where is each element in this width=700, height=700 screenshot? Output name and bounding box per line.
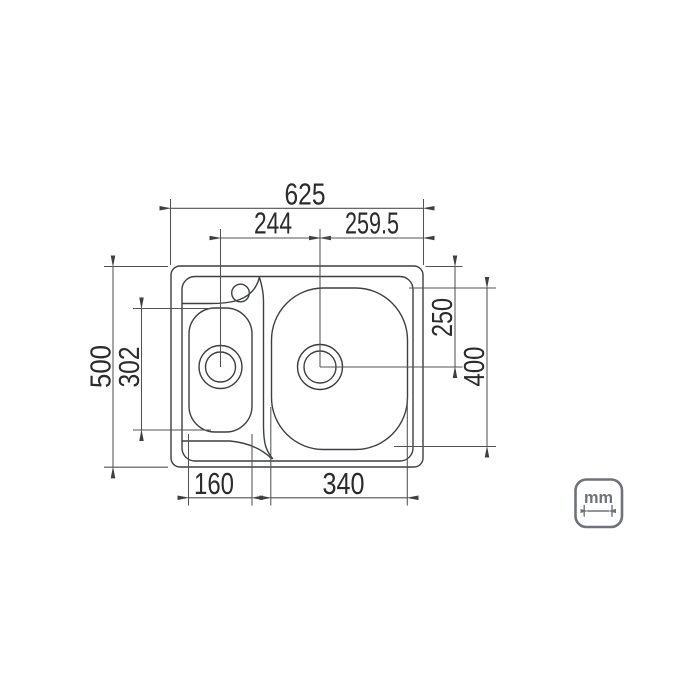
small-bowl-surround-edge — [182, 441, 272, 459]
dimension-lines — [113, 208, 487, 498]
sink-dimension-drawing: 625 244 259.5 500 302 250 400 160 340 mm — [0, 0, 700, 700]
unit-badge-label: mm — [584, 489, 613, 507]
dimension-label-small-bowl-width: 160 — [194, 466, 234, 501]
dimension-label-drain-to-right-edge: 259.5 — [345, 206, 399, 241]
large-bowl — [272, 288, 408, 450]
dimension-label-large-bowl-width: 340 — [323, 466, 365, 501]
unit-badge: mm — [576, 480, 623, 528]
dimension-label-large-bowl-depth: 400 — [459, 347, 491, 387]
dimension-label-edge-to-drain: 250 — [427, 298, 459, 337]
dimension-label-overall-depth: 500 — [86, 345, 118, 388]
dimension-labels: 625 244 259.5 500 302 250 400 160 340 — [86, 177, 492, 501]
technical-drawing-canvas: 625 244 259.5 500 302 250 400 160 340 mm — [0, 0, 700, 700]
dimension-label-small-bowl-depth: 302 — [114, 347, 146, 388]
extension-lines — [104, 199, 496, 506]
dimension-label-drain-spacing: 244 — [254, 206, 292, 241]
